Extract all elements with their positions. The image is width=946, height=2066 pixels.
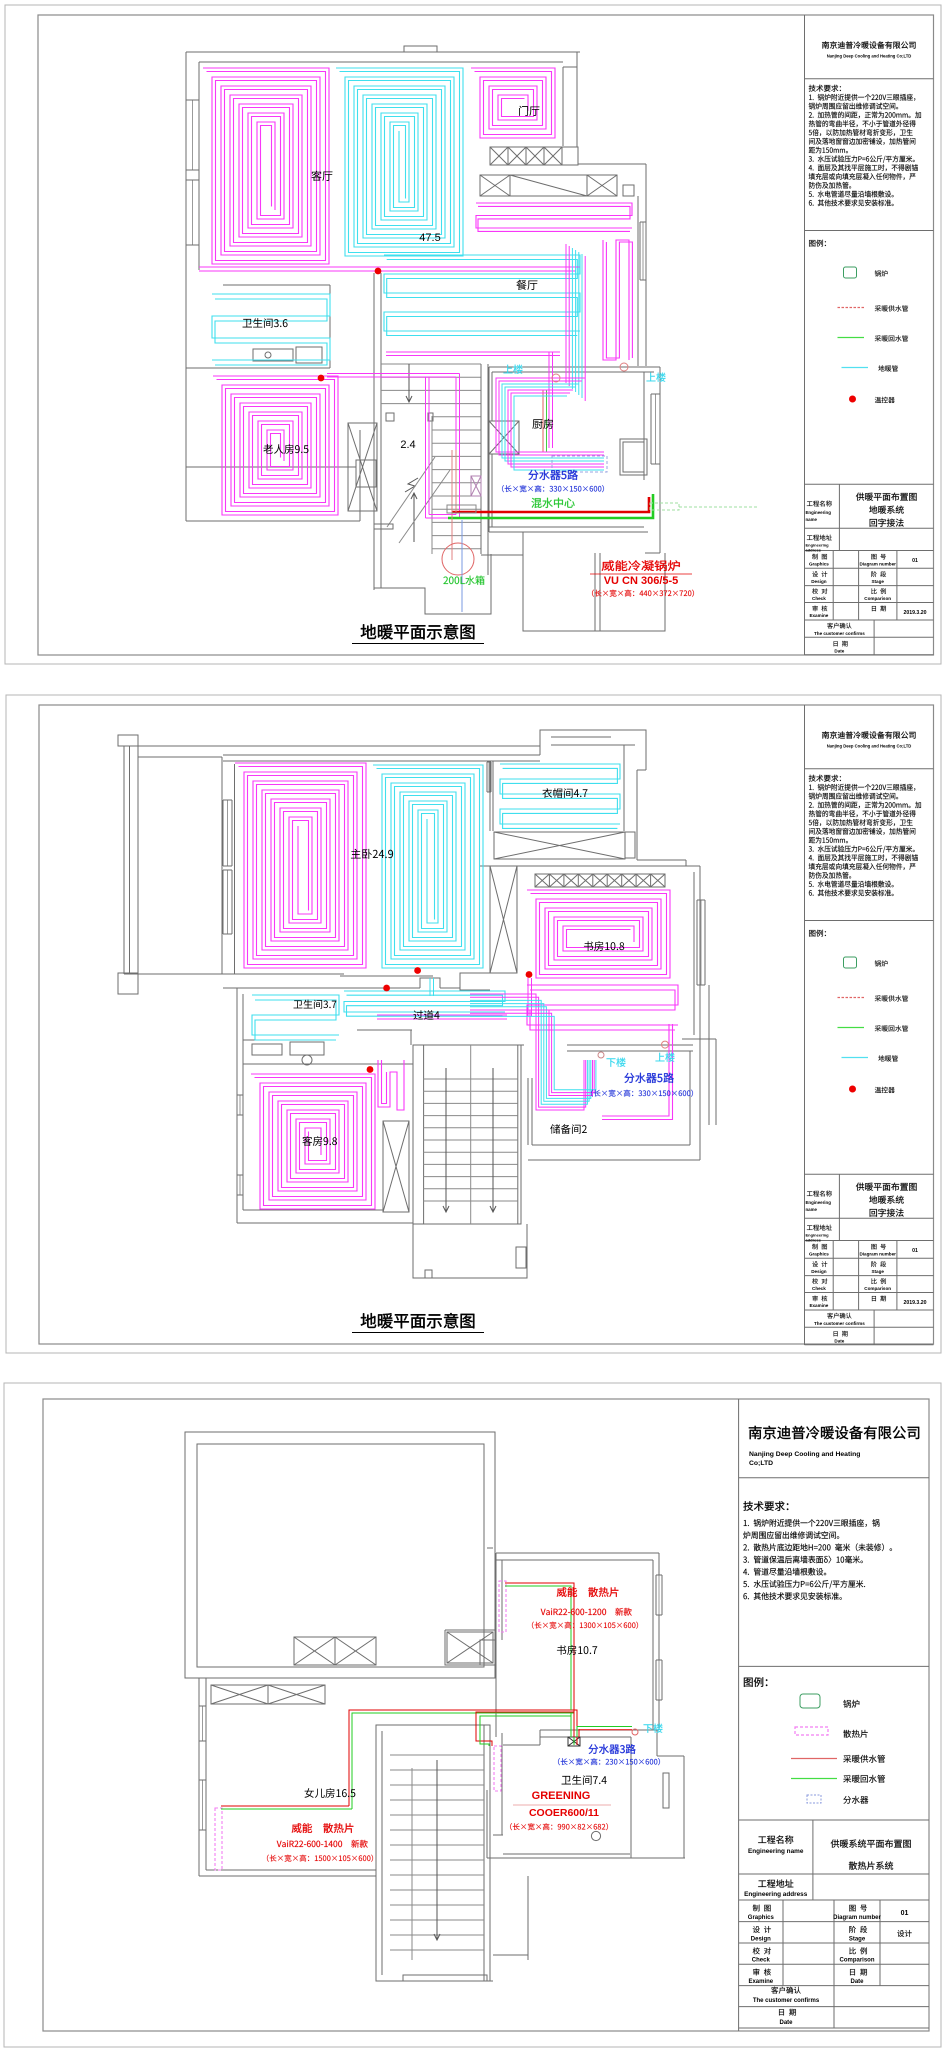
svg-text:Date: Date: [850, 1979, 864, 1985]
svg-text:Nanjing Deep Cooling and Heati: Nanjing Deep Cooling and Heating Co;LTD: [827, 54, 912, 59]
svg-text:Comparison: Comparison: [864, 596, 891, 601]
svg-text:01: 01: [901, 1910, 909, 1917]
svg-text:COOER600/11: COOER600/11: [529, 1807, 599, 1819]
svg-text:Engineering: Engineering: [806, 510, 832, 515]
svg-text:GREENING: GREENING: [532, 1790, 591, 1802]
svg-text:Stage: Stage: [849, 1936, 866, 1942]
svg-text:Engineering name: Engineering name: [748, 1848, 804, 1855]
svg-text:Graphics: Graphics: [809, 561, 829, 566]
svg-text:Design: Design: [811, 579, 827, 584]
svg-text:The customer confirms: The customer confirms: [753, 1998, 820, 2004]
svg-text:Check: Check: [752, 1958, 771, 1964]
svg-text:Examine: Examine: [748, 1979, 773, 1985]
svg-text:Stage: Stage: [871, 579, 884, 584]
svg-text:47.5: 47.5: [419, 232, 440, 244]
svg-text:Graphics: Graphics: [748, 1915, 775, 1921]
svg-text:01: 01: [912, 558, 918, 564]
svg-text:Date: Date: [834, 649, 844, 654]
svg-text:Diagram number: Diagram number: [833, 1915, 881, 1921]
svg-text:Co;LTD: Co;LTD: [749, 1460, 773, 1467]
svg-text:Design: Design: [751, 1936, 771, 1942]
svg-text:Date: Date: [779, 2020, 793, 2026]
svg-text:Nanjing Deep Cooling and Heati: Nanjing Deep Cooling and Heating: [749, 1451, 860, 1458]
svg-text:Engineering address: Engineering address: [744, 1891, 808, 1898]
svg-text:name: name: [806, 517, 818, 522]
svg-text:VU CN 306/5-5: VU CN 306/5-5: [604, 575, 679, 587]
svg-text:Comparison: Comparison: [839, 1958, 874, 1964]
svg-text:Diagram number: Diagram number: [859, 561, 896, 566]
svg-text:2.4: 2.4: [400, 439, 415, 451]
svg-text:The customer confirms: The customer confirms: [814, 631, 865, 636]
svg-text:Check: Check: [812, 596, 826, 601]
svg-text:2019.3.20: 2019.3.20: [903, 610, 926, 616]
svg-text:Examine: Examine: [809, 613, 828, 618]
svg-text:address: address: [806, 548, 822, 553]
